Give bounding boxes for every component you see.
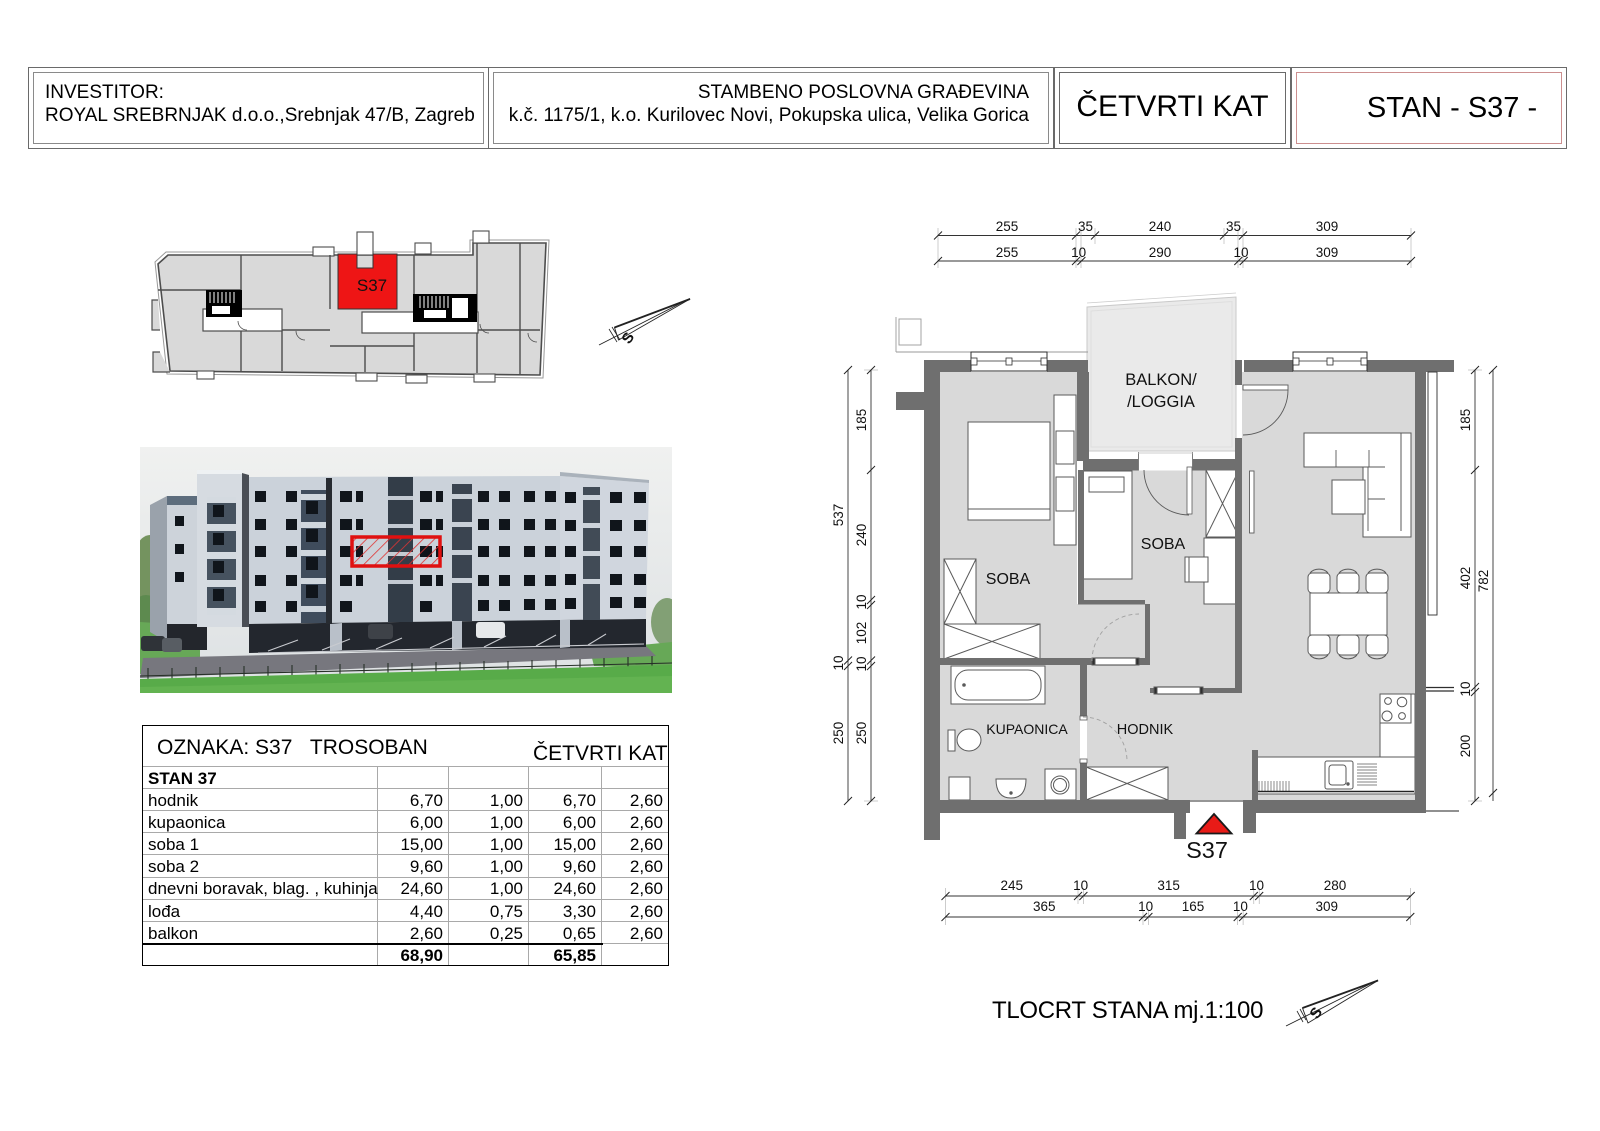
svg-text:309: 309 [1316,245,1339,260]
svg-text:S37: S37 [357,276,387,295]
svg-text:250: 250 [831,722,846,745]
svg-text:10: 10 [1138,899,1153,914]
svg-text:240: 240 [1149,219,1172,234]
svg-text:10: 10 [1249,878,1264,893]
svg-text:BALKON/: BALKON/ [1125,371,1197,389]
svg-text:10: 10 [854,656,869,671]
svg-text:290: 290 [1149,245,1172,260]
svg-text:782: 782 [1476,570,1491,593]
svg-text:10: 10 [1073,878,1088,893]
svg-text:309: 309 [1316,219,1339,234]
svg-text:10: 10 [1458,681,1473,696]
svg-text:SOBA: SOBA [1141,536,1186,553]
svg-text:10: 10 [1233,899,1248,914]
svg-text:KUPAONICA: KUPAONICA [986,721,1068,737]
svg-text:SOBA: SOBA [986,571,1031,588]
svg-text:309: 309 [1316,899,1339,914]
svg-text:10: 10 [831,655,846,670]
svg-text:365: 365 [1033,899,1056,914]
svg-text:280: 280 [1324,878,1347,893]
svg-text:S37: S37 [1186,837,1228,863]
svg-text:HODNIK: HODNIK [1117,722,1174,738]
svg-text:240: 240 [854,524,869,547]
svg-text:10: 10 [1071,245,1086,260]
svg-text:35: 35 [1226,219,1241,234]
svg-text:250: 250 [854,722,869,745]
svg-text:165: 165 [1182,899,1205,914]
svg-text:245: 245 [1001,878,1024,893]
svg-text:200: 200 [1458,735,1473,758]
svg-text:255: 255 [996,219,1019,234]
svg-text:/LOGGIA: /LOGGIA [1127,393,1195,411]
svg-text:537: 537 [831,504,846,527]
svg-text:10: 10 [854,594,869,609]
svg-text:35: 35 [1078,219,1093,234]
svg-text:102: 102 [854,622,869,645]
svg-text:S: S [619,329,639,347]
svg-text:255: 255 [996,245,1019,260]
svg-text:402: 402 [1458,567,1473,590]
svg-text:185: 185 [854,409,869,432]
svg-text:185: 185 [1458,409,1473,432]
svg-text:315: 315 [1157,878,1180,893]
svg-text:10: 10 [1233,245,1248,260]
